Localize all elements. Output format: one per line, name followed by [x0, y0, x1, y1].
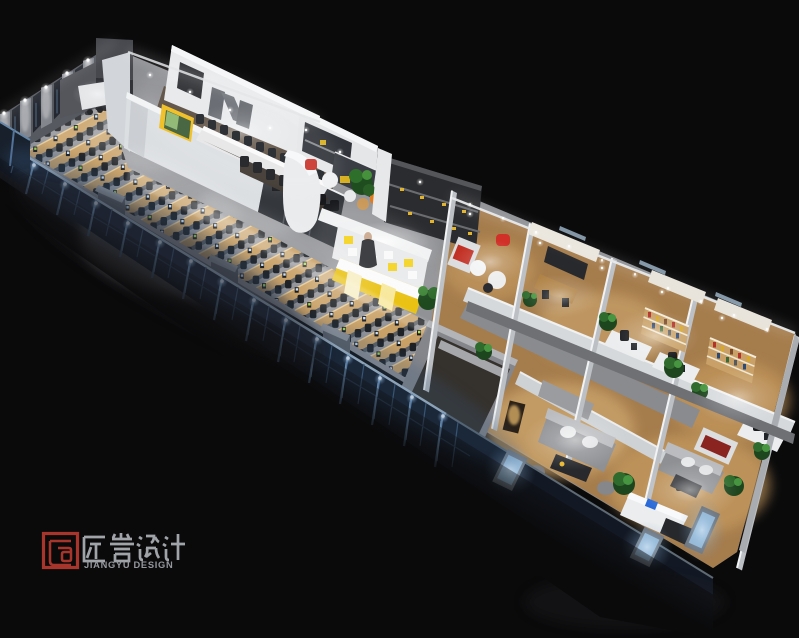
- svg-text:JIANGYU DESIGN: JIANGYU DESIGN: [84, 560, 173, 570]
